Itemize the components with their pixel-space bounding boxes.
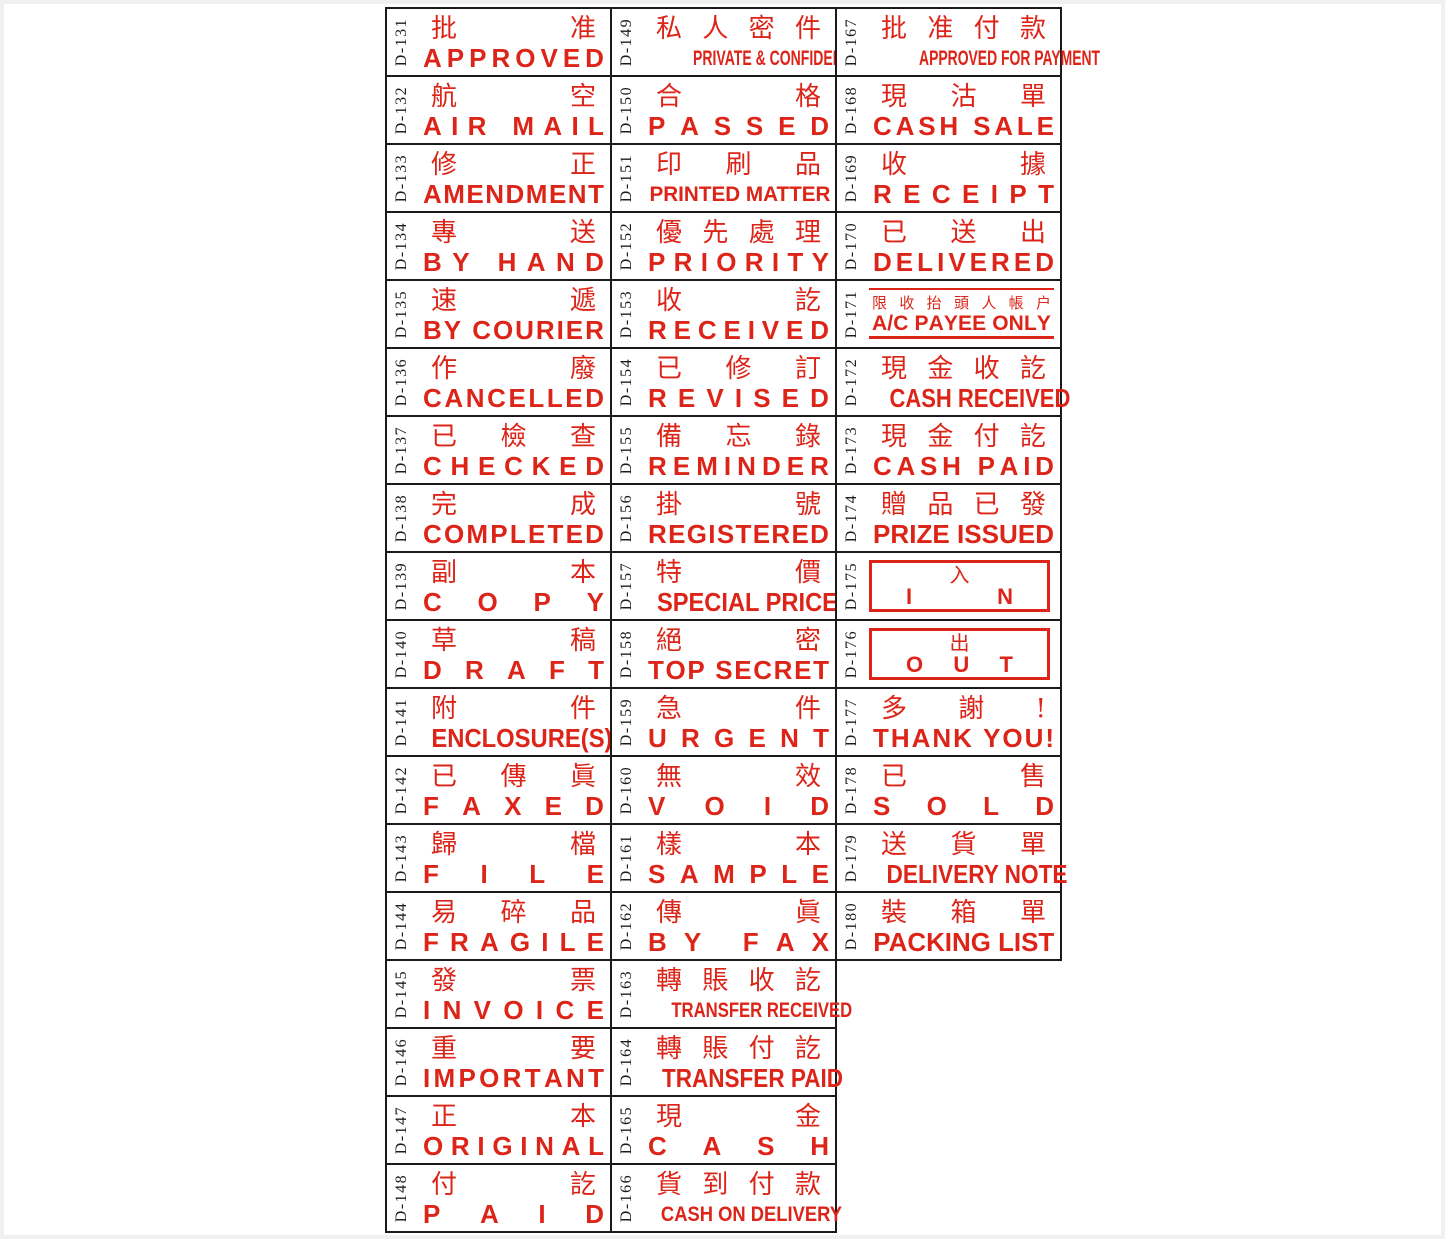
stamp-chinese-text: 急件 [656,694,821,724]
stamp-english-line: TOP SECRET [642,657,835,685]
stamp-content: 正本 ORIGINAL [417,1097,610,1163]
stamp-content: 草稿 DRAFT [417,621,610,687]
stamp-cell: D-177 多謝! THANK YOU! [835,687,1062,757]
stamp-cell: D-172 現金收訖 CASH RECEIVED [835,347,1062,417]
stamp-cell: D-157 特價 SPECIAL PRICE [610,551,837,621]
stamp-content: 轉賬收訖 TRANSFER RECEIVED [642,961,835,1027]
stamp-cell: D-150 合格 PASSED [610,75,837,145]
stamp-code-text: D-138 [393,494,411,542]
stamp-cell: D-147 正本 ORIGINAL [385,1095,612,1165]
stamp-cell: D-131 批准 APPROVED [385,7,612,77]
stamp-code-label: D-166 [612,1165,642,1231]
stamp-code-label: D-174 [837,485,867,551]
stamp-english-text: PAID [423,1201,604,1228]
stamp-chinese-text: 送貨單 [881,830,1046,860]
stamp-chinese-text: 已檢查 [431,422,596,452]
stamp-code-text: D-142 [393,766,411,814]
stamp-chinese-text: 限收抬頭人帳户 [872,293,1051,314]
stamp-code-label: D-138 [387,485,417,551]
stamp-cell: D-143 歸檔 FILE [385,823,612,893]
stamp-cell: D-153 收訖 RECEIVED [610,279,837,349]
stamp-chinese-text: 特價 [656,558,821,588]
stamp-english-text: BY HAND [423,249,604,276]
stamp-chinese-text: 易碎品 [431,898,596,928]
stamp-english-line: FAXED [417,793,610,821]
stamp-content: 絕密 TOP SECRET [642,621,835,687]
stamp-content: 批准 APPROVED [417,9,610,75]
stamp-english-line: PASSED [642,113,835,141]
stamp-code-label: D-180 [837,893,867,959]
stamp-chinese-line: 現金收訖 [867,354,1060,385]
stamp-code-text: D-174 [843,494,861,542]
stamp-chinese-text: 已修訂 [656,354,821,384]
stamp-english-line: APPROVED FOR PAYMENT [867,45,1060,73]
stamp-english-line: BY COURIER [417,317,610,345]
stamp-chinese-line: 專送 [417,218,610,249]
stamp-content: 裝箱單 PACKING LIST [867,893,1060,959]
stamp-chinese-text: 重要 [431,1034,596,1064]
stamp-content: 已修訂 REVISED [642,349,835,415]
stamp-cell: D-180 裝箱單 PACKING LIST [835,891,1062,961]
stamp-code-label: D-141 [387,689,417,755]
stamp-code-text: D-165 [618,1106,636,1154]
stamp-code-text: D-173 [843,426,861,474]
stamp-chinese-line: 航空 [417,82,610,113]
stamp-code-label: D-173 [837,417,867,483]
stamp-chinese-line: 優先處理 [642,218,835,249]
stamp-code-text: D-175 [843,562,861,610]
stamp-content: 速遞 BY COURIER [417,281,610,347]
stamp-cell: D-135 速遞 BY COURIER [385,279,612,349]
stamp-chinese-text: 作廢 [431,354,596,384]
stamp-chinese-line: 批准 [417,14,610,45]
stamp-cell: D-146 重要 IMPORTANT [385,1027,612,1097]
stamp-code-label: D-144 [387,893,417,959]
stamp-chinese-text: 完成 [431,490,596,520]
stamp-code-text: D-143 [393,834,411,882]
stamp-cell: D-166 貨到付款 CASH ON DELIVERY [610,1163,837,1233]
stamp-english-line: BY FAX [642,929,835,957]
stamp-cell: D-136 作廢 CANCELLED [385,347,612,417]
stamp-code-label: D-179 [837,825,867,891]
stamp-english-line: ENCLOSURE(S) [417,725,610,753]
stamp-english-text: TOP SECRET [648,657,829,684]
stamp-english-text: SPECIAL PRICE [657,589,838,616]
stamp-code-label: D-158 [612,621,642,687]
stamp-chinese-text: 航空 [431,82,596,112]
stamp-code-label: D-146 [387,1029,417,1095]
stamp-content: 已售 SOLD [867,757,1060,823]
stamp-english-text: RECEIVED [648,317,829,344]
stamp-chinese-text: 轉賬付訖 [656,1034,821,1064]
stamp-code-text: D-134 [393,222,411,270]
stamp-catalog-table: D-131 批准 APPROVED D-132 航空 AIR MAIL D-13… [385,7,1062,1233]
stamp-english-text: CASH [648,1133,829,1160]
stamp-english-text: SOLD [873,793,1054,820]
stamp-english-text: CASH ON DELIVERY [661,1201,842,1228]
stamp-english-line: IN [872,587,1047,609]
stamp-english-text: DELIVERED [873,249,1054,276]
stamp-english-line: APPROVED [417,45,610,73]
stamp-code-text: D-152 [618,222,636,270]
stamp-code-label: D-135 [387,281,417,347]
stamp-cell: D-175 入 IN [835,551,1062,621]
stamp-chinese-text: 贈品已發 [881,490,1046,520]
stamp-chinese-text: 草稿 [431,626,596,656]
stamp-code-label: D-176 [837,621,867,687]
stamp-code-text: D-157 [618,562,636,610]
stamp-code-text: D-137 [393,426,411,474]
stamp-english-line: RECEIPT [867,181,1060,209]
stamp-cell: D-173 現金付訖 CASH PAID [835,415,1062,485]
stamp-content: 限收抬頭人帳户 A/C PAYEE ONLY [837,281,1060,347]
stamp-english-text: RECEIPT [873,181,1054,208]
stamp-chinese-line: 轉賬收訖 [642,966,835,997]
stamp-english-text: THANK YOU! [873,725,1054,752]
stamp-code-text: D-136 [393,358,411,406]
stamp-code-text: D-150 [618,86,636,134]
stamp-cell: D-163 轉賬收訖 TRANSFER RECEIVED [610,959,837,1029]
stamp-content: 航空 AIR MAIL [417,77,610,143]
stamp-english-text: PRIORITY [648,249,829,276]
stamp-english-line: CASH [642,1133,835,1161]
stamp-code-label: D-153 [612,281,642,347]
stamp-content: 副本 COPY [417,553,610,619]
stamp-cell: D-134 專送 BY HAND [385,211,612,281]
stamp-code-label: D-140 [387,621,417,687]
stamp-code-label: D-143 [387,825,417,891]
stamp-chinese-line: 已售 [867,762,1060,793]
stamp-english-line: PRINTED MATTER [642,181,835,209]
stamp-chinese-line: 草稿 [417,626,610,657]
stamp-chinese-text: 已傳眞 [431,762,596,792]
stamp-code-text: D-180 [843,902,861,950]
stamp-content: 出 OUT [869,628,1050,680]
stamp-cell: D-168 現沽單 CASH SALE [835,75,1062,145]
stamp-english-line: REMINDER [642,453,835,481]
stamp-english-line: ORIGINAL [417,1133,610,1161]
stamp-content: 合格 PASSED [642,77,835,143]
stamp-cell: D-167 批准付款 APPROVED FOR PAYMENT [835,7,1062,77]
stamp-english-text: FRAGILE [423,929,604,956]
stamp-code-text: D-154 [618,358,636,406]
stamp-cell: D-170 已送出 DELIVERED [835,211,1062,281]
stamp-chinese-text: 批准 [431,14,596,44]
stamp-code-text: D-148 [393,1174,411,1222]
stamp-chinese-text: 速遞 [431,286,596,316]
stamp-english-text: PACKING LIST [873,929,1054,956]
stamp-code-label: D-169 [837,145,867,211]
stamp-english-text: REGISTERED [648,521,829,548]
stamp-english-line: SAMPLE [642,861,835,889]
stamp-content: 急件 URGENT [642,689,835,755]
stamp-code-text: D-163 [618,970,636,1018]
stamp-content: 收訖 RECEIVED [642,281,835,347]
stamp-chinese-line: 已傳眞 [417,762,610,793]
stamp-chinese-line: 轉賬付訖 [642,1034,835,1065]
stamp-chinese-text: 轉賬收訖 [656,966,821,996]
stamp-chinese-line: 修正 [417,150,610,181]
catalog-column: D-149 私人密件 PRIVATE & CONFIDENTIAL D-150 … [610,7,837,1233]
stamp-english-line: SPECIAL PRICE [642,589,835,617]
stamp-code-label: D-142 [387,757,417,823]
stamp-code-text: D-151 [618,154,636,202]
stamp-content: 已送出 DELIVERED [867,213,1060,279]
stamp-content: 發票 INVOICE [417,961,610,1027]
stamp-english-text: REVISED [648,385,829,412]
stamp-chinese-line: 收據 [867,150,1060,181]
stamp-english-line: IMPORTANT [417,1065,610,1093]
stamp-chinese-line: 歸檔 [417,830,610,861]
stamp-content: 贈品已發 PRIZE ISSUED [867,485,1060,551]
stamp-cell: D-132 航空 AIR MAIL [385,75,612,145]
stamp-chinese-line: 批准付款 [867,14,1060,45]
stamp-english-text: PASSED [648,113,829,140]
stamp-chinese-text: 裝箱單 [881,898,1046,928]
stamp-code-text: D-179 [843,834,861,882]
stamp-cell: D-156 掛號 REGISTERED [610,483,837,553]
stamp-content: 多謝! THANK YOU! [867,689,1060,755]
stamp-cell: D-161 樣本 SAMPLE [610,823,837,893]
stamp-chinese-text: 專送 [431,218,596,248]
stamp-code-text: D-160 [618,766,636,814]
stamp-content: 貨到付款 CASH ON DELIVERY [642,1165,835,1231]
stamp-chinese-line: 作廢 [417,354,610,385]
stamp-code-label: D-139 [387,553,417,619]
stamp-chinese-text: 收訖 [656,286,821,316]
stamp-code-text: D-164 [618,1038,636,1086]
stamp-code-label: D-177 [837,689,867,755]
stamp-code-text: D-146 [393,1038,411,1086]
stamp-content: 附件 ENCLOSURE(S) [417,689,610,755]
stamp-code-label: D-171 [837,281,867,347]
stamp-english-line: TRANSFER RECEIVED [642,997,835,1025]
stamp-chinese-text: 修正 [431,150,596,180]
stamp-chinese-line: 現沽單 [867,82,1060,113]
stamp-english-line: PAID [417,1201,610,1229]
stamp-english-text: TRANSFER RECEIVED [671,997,852,1024]
stamp-code-text: D-135 [393,290,411,338]
stamp-content: 現沽單 CASH SALE [867,77,1060,143]
stamp-chinese-line: 貨到付款 [642,1170,835,1201]
stamp-cell: D-145 發票 INVOICE [385,959,612,1029]
stamp-cell: D-160 無效 VOID [610,755,837,825]
stamp-content: 私人密件 PRIVATE & CONFIDENTIAL [642,9,835,75]
stamp-cell: D-139 副本 COPY [385,551,612,621]
stamp-chinese-text: 入 [950,565,970,586]
stamp-content: 重要 IMPORTANT [417,1029,610,1095]
stamp-code-label: D-145 [387,961,417,1027]
stamp-code-label: D-156 [612,485,642,551]
stamp-english-text: PRINTED MATTER [649,181,830,208]
stamp-content: 現金收訖 CASH RECEIVED [867,349,1060,415]
stamp-cell: D-164 轉賬付訖 TRANSFER PAID [610,1027,837,1097]
stamp-english-line: FILE [417,861,610,889]
stamp-cell: D-165 現金 CASH [610,1095,837,1165]
stamp-chinese-line: 重要 [417,1034,610,1065]
stamp-english-line: AIR MAIL [417,113,610,141]
stamp-chinese-text: 現金 [656,1102,821,1132]
stamp-chinese-line: 入 [872,565,1047,587]
stamp-chinese-line: 現金 [642,1102,835,1133]
stamp-chinese-line: 私人密件 [642,14,835,45]
stamp-content: 已檢查 CHECKED [417,417,610,483]
stamp-code-label: D-161 [612,825,642,891]
stamp-cell: D-176 出 OUT [835,619,1062,689]
stamp-content: 已傳眞 FAXED [417,757,610,823]
stamp-code-text: D-167 [843,18,861,66]
stamp-english-text: APPROVED FOR PAYMENT [919,45,1100,72]
stamp-english-text: COMPLETED [423,521,604,548]
stamp-english-line: OUT [872,655,1047,677]
stamp-code-label: D-175 [837,553,867,619]
stamp-code-text: D-149 [618,18,636,66]
stamp-cell: D-154 已修訂 REVISED [610,347,837,417]
stamp-cell: D-149 私人密件 PRIVATE & CONFIDENTIAL [610,7,837,77]
stamp-code-label: D-154 [612,349,642,415]
stamp-code-label: D-164 [612,1029,642,1095]
stamp-content: 專送 BY HAND [417,213,610,279]
stamp-english-line: DRAFT [417,657,610,685]
stamp-cell: D-171 限收抬頭人帳户 A/C PAYEE ONLY [835,279,1062,349]
catalog-column: D-167 批准付款 APPROVED FOR PAYMENT D-168 現沽… [835,7,1062,961]
stamp-english-text: AMENDMENT [423,181,604,208]
stamp-code-label: D-178 [837,757,867,823]
stamp-code-text: D-147 [393,1106,411,1154]
stamp-cell: D-133 修正 AMENDMENT [385,143,612,213]
stamp-english-line: CASH SALE [867,113,1060,141]
stamp-code-label: D-133 [387,145,417,211]
stamp-english-line: COPY [417,589,610,617]
stamp-cell: D-152 優先處理 PRIORITY [610,211,837,281]
stamp-chinese-text: 絕密 [656,626,821,656]
stamp-cell: D-151 印刷品 PRINTED MATTER [610,143,837,213]
stamp-chinese-text: 多謝! [881,694,1046,724]
stamp-english-line: REVISED [642,385,835,413]
stamp-cell: D-141 附件 ENCLOSURE(S) [385,687,612,757]
stamp-content: 送貨單 DELIVERY NOTE [867,825,1060,891]
stamp-english-line: DELIVERY NOTE [867,861,1060,889]
stamp-code-label: D-167 [837,9,867,75]
stamp-chinese-line: 限收抬頭人帳户 [869,288,1054,312]
stamp-chinese-text: 已售 [881,762,1046,792]
stamp-code-label: D-162 [612,893,642,959]
stamp-chinese-text: 無效 [656,762,821,792]
stamp-english-line: PACKING LIST [867,929,1060,957]
stamp-code-text: D-158 [618,630,636,678]
stamp-code-text: D-170 [843,222,861,270]
stamp-code-label: D-159 [612,689,642,755]
stamp-content: 備忘錄 REMINDER [642,417,835,483]
stamp-english-text: CHECKED [423,453,604,480]
stamp-code-label: D-172 [837,349,867,415]
stamp-chinese-line: 樣本 [642,830,835,861]
stamp-english-line: CHECKED [417,453,610,481]
stamp-english-line: A/C PAYEE ONLY [869,312,1054,339]
stamp-english-text: APPROVED [423,45,604,72]
stamp-chinese-text: 貨到付款 [656,1170,821,1200]
stamp-chinese-text: 樣本 [656,830,821,860]
stamp-english-text: IMPORTANT [423,1065,604,1092]
stamp-code-label: D-134 [387,213,417,279]
stamp-code-label: D-168 [837,77,867,143]
stamp-code-text: D-177 [843,698,861,746]
stamp-code-label: D-147 [387,1097,417,1163]
stamp-chinese-line: 付訖 [417,1170,610,1201]
stamp-chinese-text: 優先處理 [656,218,821,248]
stamp-code-label: D-150 [612,77,642,143]
stamp-code-label: D-160 [612,757,642,823]
stamp-chinese-text: 副本 [431,558,596,588]
stamp-chinese-text: 已送出 [881,218,1046,248]
stamp-english-text: INVOICE [423,997,604,1024]
stamp-content: 現金付訖 CASH PAID [867,417,1060,483]
stamp-chinese-line: 速遞 [417,286,610,317]
stamp-code-text: D-145 [393,970,411,1018]
stamp-english-text: VOID [648,793,829,820]
stamp-code-label: D-157 [612,553,642,619]
stamp-chinese-line: 備忘錄 [642,422,835,453]
stamp-english-text: COPY [423,589,604,616]
stamp-code-text: D-172 [843,358,861,406]
stamp-code-text: D-131 [393,18,411,66]
stamp-english-text: REMINDER [648,453,829,480]
stamp-code-label: D-137 [387,417,417,483]
stamp-english-line: COMPLETED [417,521,610,549]
stamp-chinese-line: 急件 [642,694,835,725]
stamp-chinese-line: 特價 [642,558,835,589]
stamp-chinese-text: 正本 [431,1102,596,1132]
stamp-chinese-line: 副本 [417,558,610,589]
stamp-cell: D-162 傳眞 BY FAX [610,891,837,961]
stamp-english-text: BY COURIER [423,317,604,344]
stamp-chinese-line: 無效 [642,762,835,793]
stamp-chinese-line: 掛號 [642,490,835,521]
stamp-content: 歸檔 FILE [417,825,610,891]
stamp-english-text: CASH SALE [873,113,1054,140]
stamp-chinese-line: 已檢查 [417,422,610,453]
stamp-chinese-text: 現金付訖 [881,422,1046,452]
stamp-code-text: D-176 [843,630,861,678]
stamp-cell: D-159 急件 URGENT [610,687,837,757]
stamp-content: 掛號 REGISTERED [642,485,835,551]
stamp-content: 修正 AMENDMENT [417,145,610,211]
stamp-code-label: D-136 [387,349,417,415]
stamp-english-text: BY FAX [648,929,829,956]
stamp-english-text: FILE [423,861,604,888]
stamp-english-line: PRIVATE & CONFIDENTIAL [642,45,835,73]
stamp-chinese-text: 掛號 [656,490,821,520]
stamp-chinese-text: 傳眞 [656,898,821,928]
stamp-english-text: CASH PAID [873,453,1054,480]
stamp-english-text: AIR MAIL [423,113,604,140]
stamp-chinese-text: 批准付款 [881,14,1046,44]
stamp-chinese-text: 收據 [881,150,1046,180]
stamp-english-text: TRANSFER PAID [662,1065,843,1092]
stamp-code-label: D-132 [387,77,417,143]
stamp-chinese-line: 多謝! [867,694,1060,725]
stamp-content: 入 IN [869,560,1050,612]
stamp-english-line: PRIORITY [642,249,835,277]
stamp-english-line: URGENT [642,725,835,753]
stamp-english-line: CASH PAID [867,453,1060,481]
stamp-content: 優先處理 PRIORITY [642,213,835,279]
stamp-cell: D-137 已檢查 CHECKED [385,415,612,485]
stamp-code-text: D-141 [393,698,411,746]
stamp-content: 付訖 PAID [417,1165,610,1231]
stamp-content: 印刷品 PRINTED MATTER [642,145,835,211]
stamp-chinese-line: 已修訂 [642,354,835,385]
